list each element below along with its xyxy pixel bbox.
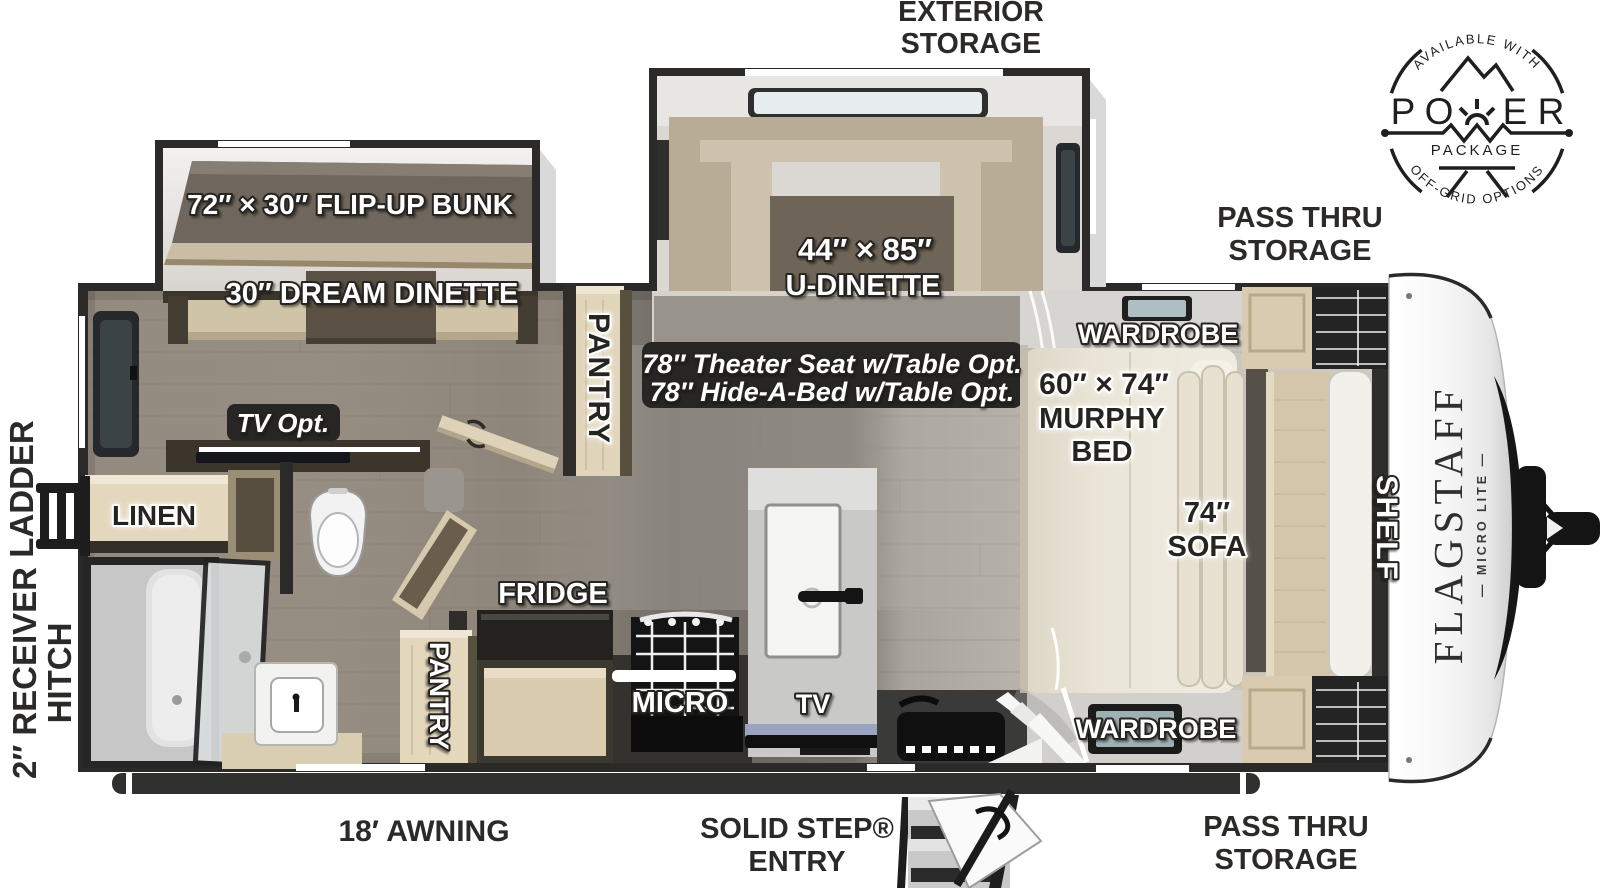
svg-text:FLAGSTAFF: FLAGSTAFF: [1425, 384, 1471, 665]
svg-text:BED: BED: [1071, 436, 1132, 468]
svg-text:60″ × 74″: 60″ × 74″: [1039, 368, 1169, 401]
svg-text:SHELF: SHELF: [1370, 475, 1403, 581]
svg-text:R: R: [1538, 91, 1565, 132]
svg-text:STORAGE: STORAGE: [1229, 235, 1372, 267]
svg-text:E: E: [1503, 91, 1528, 132]
svg-text:TV Opt.: TV Opt.: [237, 408, 329, 438]
svg-text:ENTRY: ENTRY: [748, 846, 845, 878]
svg-text:LADDER: LADDER: [3, 420, 40, 558]
svg-text:MURPHY: MURPHY: [1039, 403, 1165, 435]
svg-text:EXTERIOR: EXTERIOR: [898, 0, 1044, 28]
svg-text:WARDROBE: WARDROBE: [1078, 319, 1239, 349]
svg-text:78″ Theater Seat w/Table Opt.: 78″ Theater Seat w/Table Opt.: [642, 349, 1022, 379]
svg-text:PANTRY: PANTRY: [424, 642, 454, 750]
svg-text:PANTRY: PANTRY: [582, 313, 615, 445]
svg-text:P: P: [1391, 91, 1416, 132]
svg-text:PASS THRU: PASS THRU: [1217, 202, 1382, 234]
svg-text:72″ × 30″ FLIP-UP BUNK: 72″ × 30″ FLIP-UP BUNK: [187, 189, 513, 220]
svg-text:O: O: [1425, 91, 1454, 132]
svg-text:HITCH: HITCH: [41, 623, 78, 724]
svg-text:FRIDGE: FRIDGE: [498, 578, 608, 610]
svg-text:44″ × 85″: 44″ × 85″: [798, 232, 932, 267]
svg-text:STORAGE: STORAGE: [1215, 844, 1358, 876]
svg-text:2″ RECEIVER: 2″ RECEIVER: [6, 567, 43, 779]
svg-text:30″ DREAM DINETTE: 30″ DREAM DINETTE: [226, 278, 519, 310]
svg-text:— MICRO LITE —: — MICRO LITE —: [1475, 451, 1489, 597]
svg-text:STORAGE: STORAGE: [901, 28, 1041, 60]
svg-text:PACKAGE: PACKAGE: [1431, 142, 1523, 159]
svg-text:U-DINETTE: U-DINETTE: [786, 270, 941, 302]
svg-text:MICRO: MICRO: [632, 687, 729, 719]
svg-text:SOLID STEP®: SOLID STEP®: [700, 813, 894, 845]
svg-text:LINEN: LINEN: [112, 500, 196, 531]
svg-text:WARDROBE: WARDROBE: [1076, 714, 1237, 744]
svg-text:PASS THRU: PASS THRU: [1203, 811, 1368, 843]
svg-text:18′ AWNING: 18′ AWNING: [338, 815, 509, 848]
svg-text:74″: 74″: [1184, 497, 1230, 529]
svg-text:TV: TV: [796, 689, 831, 719]
svg-text:SOFA: SOFA: [1168, 531, 1247, 563]
svg-text:78″ Hide-A-Bed w/Table Opt.: 78″ Hide-A-Bed w/Table Opt.: [650, 377, 1014, 407]
